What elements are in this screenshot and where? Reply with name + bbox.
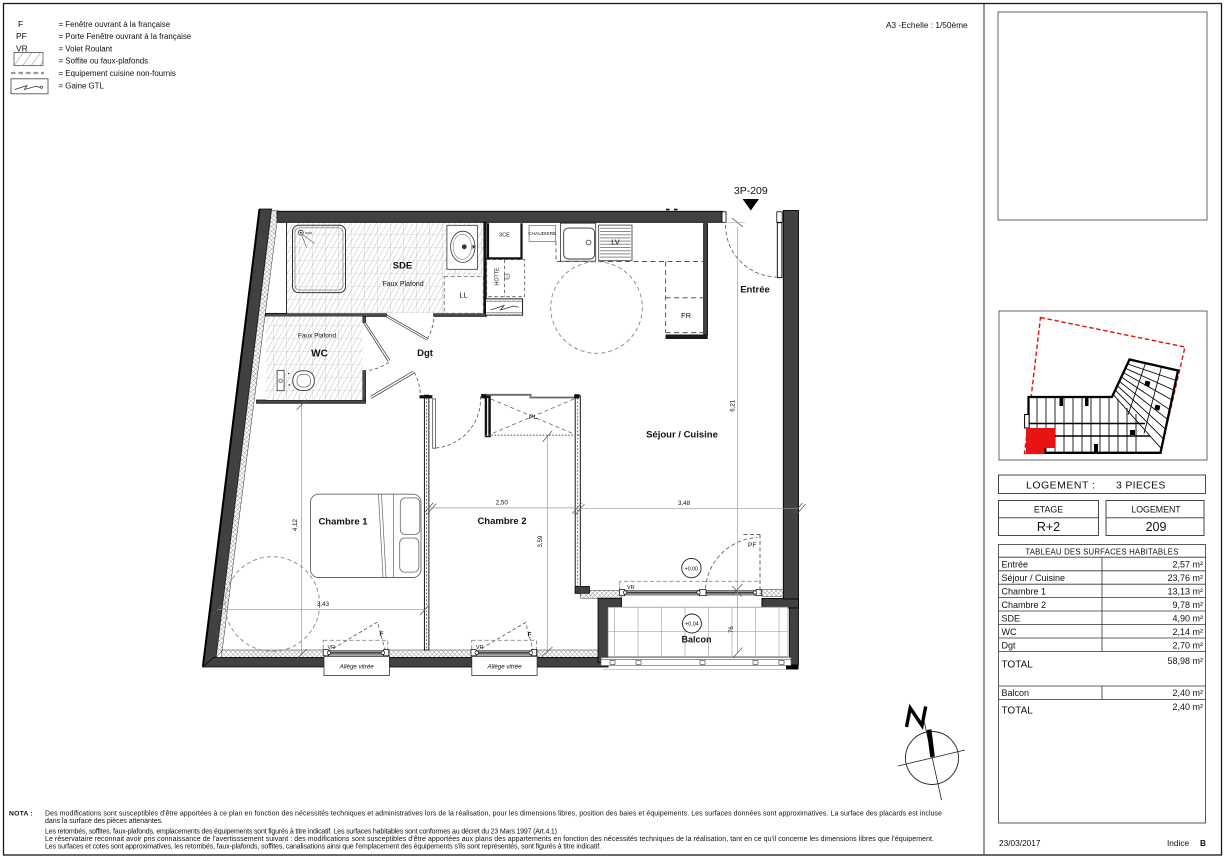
- svg-text:Les surfaces et cotes sont app: Les surfaces et cotes sont approximative…: [45, 844, 601, 851]
- svg-text:F: F: [18, 19, 23, 29]
- svg-text:= Gaine GTL: = Gaine GTL: [59, 82, 105, 91]
- svg-text:LOGEMENT: LOGEMENT: [1131, 505, 1181, 515]
- svg-text:Des modifications sont suscept: Des modifications sont susceptibles d'êt…: [45, 811, 942, 818]
- svg-text:Balcon: Balcon: [1002, 688, 1030, 698]
- svg-text:Faux Plafond: Faux Plafond: [298, 333, 337, 340]
- svg-text:Dgt: Dgt: [417, 348, 434, 359]
- svg-text:23/03/2017: 23/03/2017: [999, 838, 1041, 848]
- svg-text:WC: WC: [311, 349, 328, 360]
- svg-text:PL: PL: [529, 414, 538, 421]
- svg-text:VR: VR: [476, 645, 484, 651]
- svg-text:VR: VR: [627, 585, 635, 591]
- svg-text:= Fenêtre ouvrant à la françai: = Fenêtre ouvrant à la française: [59, 20, 171, 29]
- svg-text:PF: PF: [16, 31, 27, 41]
- svg-text:58,98 m²: 58,98 m²: [1167, 656, 1203, 666]
- svg-text:209: 209: [1146, 520, 1167, 534]
- svg-text:Chambre 2: Chambre 2: [477, 516, 526, 527]
- svg-text:A3 -Echelle : 1/50ème: A3 -Echelle : 1/50ème: [886, 20, 968, 30]
- svg-text:B: B: [1200, 838, 1206, 848]
- svg-text:SDE: SDE: [1002, 614, 1021, 624]
- svg-text:23,76 m²: 23,76 m²: [1167, 573, 1203, 583]
- svg-text:ETAGE: ETAGE: [1034, 505, 1063, 515]
- svg-text:Chambre 1: Chambre 1: [318, 517, 368, 528]
- svg-text:4,12: 4,12: [292, 519, 299, 532]
- svg-text:PF: PF: [748, 542, 756, 549]
- svg-text:FR: FR: [681, 311, 692, 320]
- svg-text:2,14 m²: 2,14 m²: [1172, 627, 1203, 637]
- svg-text:Dgt: Dgt: [1002, 641, 1017, 651]
- svg-text:CHAUDIERE: CHAUDIERE: [528, 231, 556, 237]
- svg-text:Allège vitrée: Allège vitrée: [339, 664, 375, 671]
- svg-text:2,40 m²: 2,40 m²: [1172, 688, 1203, 698]
- svg-text:Le réservataire reconnait avoi: Le réservataire reconnait avoir pris con…: [45, 836, 934, 843]
- svg-text:2,40 m²: 2,40 m²: [1172, 702, 1203, 712]
- svg-text:HOTTE: HOTTE: [495, 267, 501, 285]
- svg-text:3CE: 3CE: [499, 233, 510, 239]
- svg-text:= Volet Roulant: = Volet Roulant: [59, 45, 114, 54]
- svg-text:2,50: 2,50: [496, 500, 509, 507]
- svg-text:90x90: 90x90: [305, 231, 313, 235]
- svg-text:3P-209: 3P-209: [734, 185, 768, 197]
- svg-text:76: 76: [728, 626, 735, 633]
- svg-text:9,78 m²: 9,78 m²: [1172, 600, 1203, 610]
- svg-text:Allège vitrée: Allège vitrée: [486, 664, 522, 671]
- svg-text:= Soffite ou faux-plafonds: = Soffite ou faux-plafonds: [59, 57, 149, 66]
- svg-text:LOGEMENT :: LOGEMENT :: [1026, 480, 1096, 492]
- svg-text:R+2: R+2: [1037, 520, 1060, 534]
- svg-text:Balcon: Balcon: [681, 635, 711, 645]
- svg-text:Entrée: Entrée: [740, 285, 770, 296]
- svg-text:TABLEAU DES SURFACES HABITABLE: TABLEAU DES SURFACES HABITABLES: [1025, 548, 1178, 557]
- svg-text:2,57 m²: 2,57 m²: [1172, 560, 1203, 570]
- svg-text:6,21: 6,21: [730, 399, 737, 412]
- svg-text:3,43: 3,43: [317, 601, 330, 608]
- svg-text:SDE: SDE: [393, 261, 413, 272]
- svg-text:NOTA :: NOTA :: [9, 811, 33, 818]
- svg-text:3,59: 3,59: [537, 535, 544, 548]
- svg-text:VR: VR: [16, 44, 28, 54]
- svg-text:LL: LL: [459, 291, 467, 300]
- svg-text:3 PIECES: 3 PIECES: [1116, 480, 1166, 492]
- svg-text:Faux Plafond: Faux Plafond: [382, 281, 423, 288]
- svg-text:Chambre 1: Chambre 1: [1002, 587, 1047, 597]
- svg-text:Séjour / Cuisine: Séjour / Cuisine: [1002, 573, 1066, 583]
- svg-text:TOTAL: TOTAL: [1002, 660, 1034, 671]
- svg-text:Les retombés, soffites, faux-p: Les retombés, soffites, faux-plafonds, e…: [45, 829, 557, 836]
- svg-text:Chambre 2: Chambre 2: [1002, 600, 1047, 610]
- svg-text:4,90 m²: 4,90 m²: [1172, 614, 1203, 624]
- svg-text:TOTAL: TOTAL: [1002, 706, 1034, 717]
- svg-text:F: F: [528, 632, 532, 639]
- svg-text:+0,04: +0,04: [685, 622, 698, 628]
- svg-text:WC: WC: [1002, 627, 1017, 637]
- svg-text:Séjour / Cuisine: Séjour / Cuisine: [646, 430, 718, 441]
- svg-text:Indice: Indice: [1167, 838, 1190, 848]
- svg-text:= Porte Fenêtre ouvrant à la f: = Porte Fenêtre ouvrant à la française: [59, 32, 192, 41]
- svg-text:2,70 m²: 2,70 m²: [1172, 641, 1203, 651]
- svg-text:Entrée: Entrée: [1002, 560, 1029, 570]
- svg-text:3,48: 3,48: [678, 500, 691, 507]
- svg-text:dans la surface des pièces att: dans la surface des pièces attenantes.: [45, 818, 163, 825]
- svg-text:13,13 m²: 13,13 m²: [1167, 587, 1203, 597]
- svg-text:+0,00: +0,00: [685, 566, 698, 572]
- svg-text:= Equipement cuisine non-fourn: = Equipement cuisine non-fournis: [59, 69, 176, 78]
- svg-text:LV: LV: [611, 238, 620, 247]
- svg-text:F: F: [380, 631, 384, 638]
